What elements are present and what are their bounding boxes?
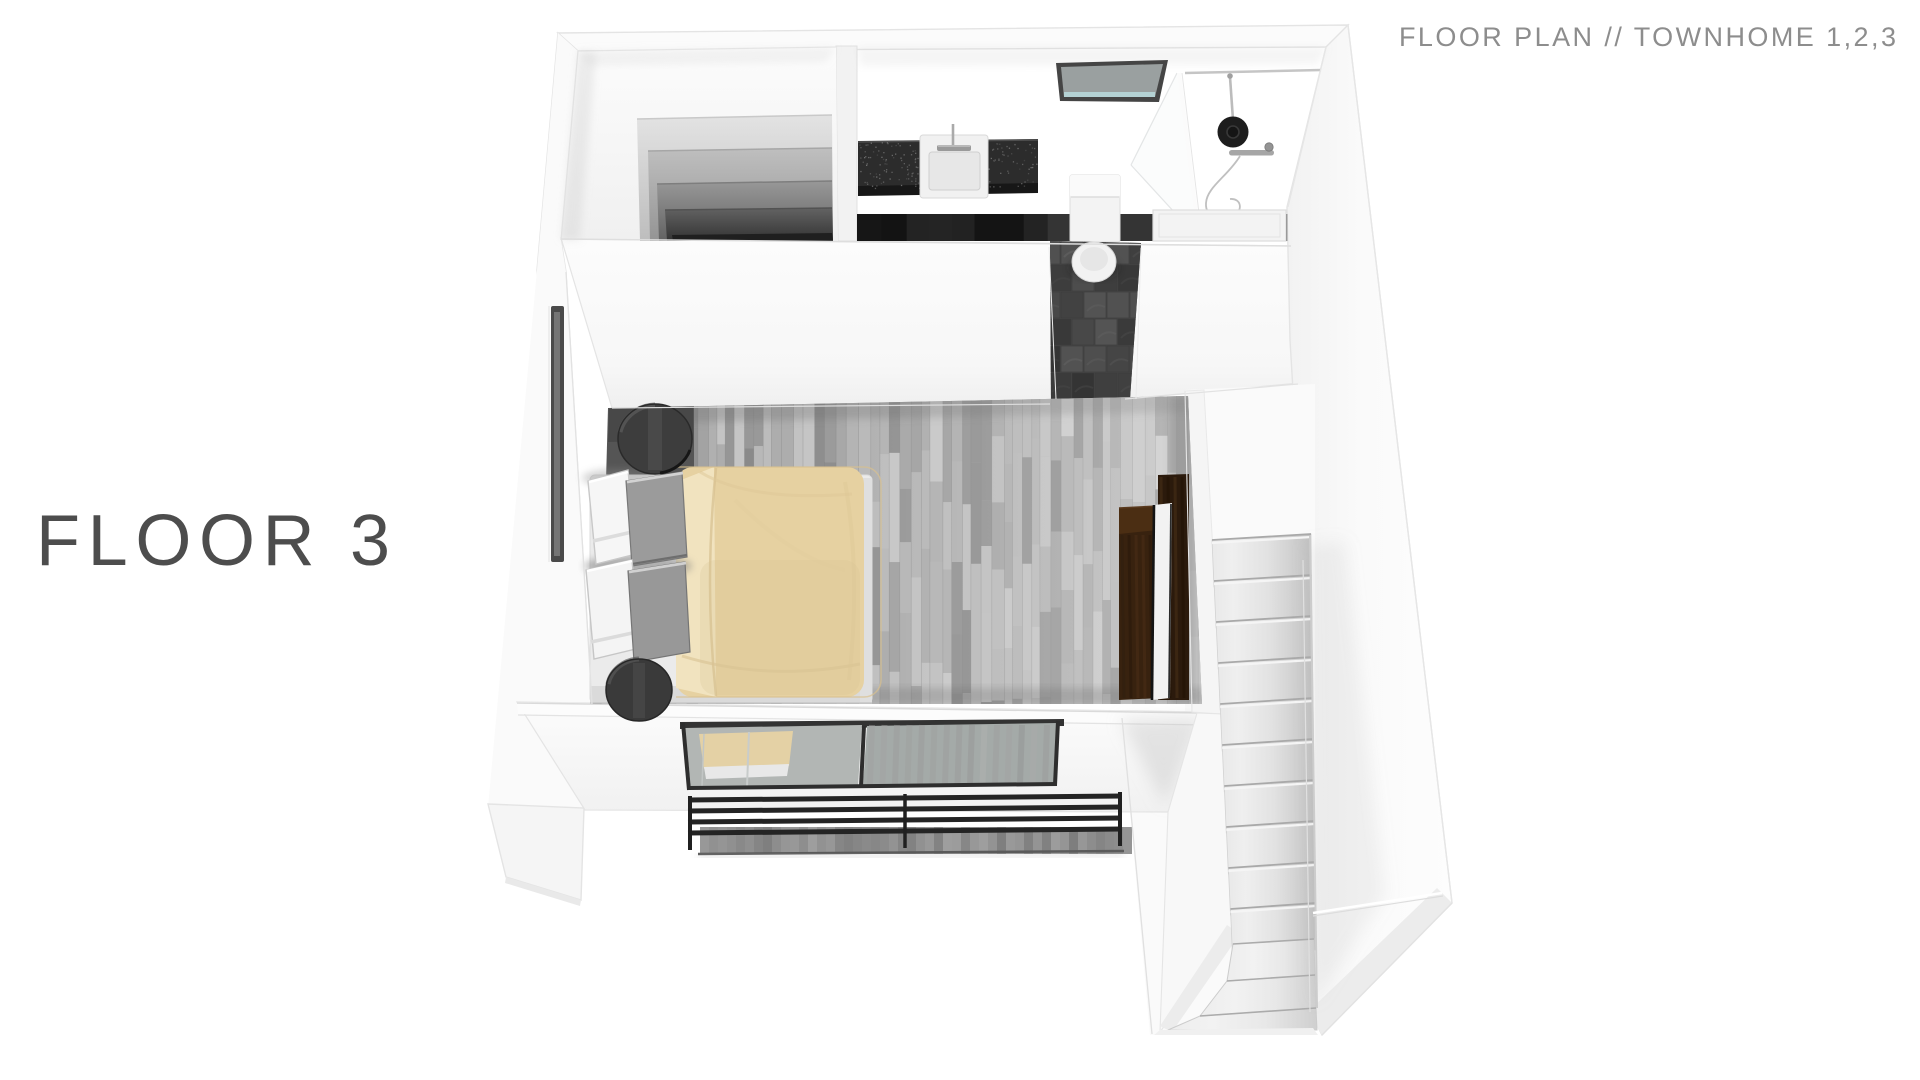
svg-text:FLOOR 3: FLOOR 3 xyxy=(36,501,390,581)
svg-text:FLOOR PLAN // TOWNHOME 1,2,3: FLOOR PLAN // TOWNHOME 1,2,3 xyxy=(1399,22,1896,52)
